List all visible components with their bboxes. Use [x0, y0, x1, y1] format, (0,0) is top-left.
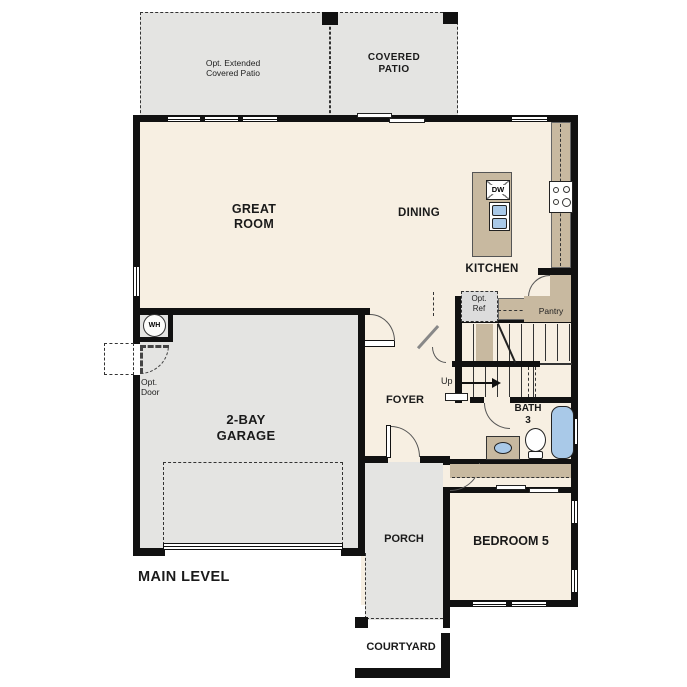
toilet-tank — [528, 451, 543, 459]
closet-slider-panel — [529, 488, 559, 493]
wall — [133, 548, 165, 556]
toilet-icon — [525, 428, 546, 452]
closet-slider-panel — [496, 485, 526, 490]
opt-door-swing-area — [104, 343, 134, 375]
garage-label: 2-BAY GARAGE — [217, 412, 276, 443]
wall — [540, 363, 572, 365]
patio-post — [322, 12, 338, 25]
wall — [443, 490, 450, 628]
bathtub-icon — [551, 406, 574, 459]
courtyard-wall — [355, 668, 450, 678]
sliding-door-panel — [389, 118, 425, 123]
porch-corner-post — [355, 617, 368, 628]
main-level-title: MAIN LEVEL — [138, 569, 230, 586]
window — [571, 569, 578, 593]
wall — [358, 456, 388, 463]
sink-bowl — [492, 205, 507, 216]
porch-dash-edge — [365, 553, 366, 619]
stairs-landing-wall — [476, 324, 493, 361]
wall — [538, 268, 578, 275]
pantry-label: Pantry — [539, 306, 564, 316]
covered-patio-label: COVERED PATIO — [368, 52, 420, 76]
wall — [341, 548, 365, 556]
great-room-label: GREAT ROOM — [232, 202, 276, 232]
wall — [139, 337, 173, 342]
dishwasher-icon: DW — [486, 180, 510, 200]
porch-dash-edge — [366, 618, 443, 619]
dishwasher-label: DW — [490, 185, 506, 194]
closet-rod-dash — [452, 477, 569, 478]
opt-extended-patio-label: Opt. Extended Covered Patio — [206, 58, 260, 78]
up-arrow-head — [492, 378, 501, 388]
opt-door-label: Opt. Door — [141, 377, 159, 397]
porch-label: PORCH — [384, 533, 424, 546]
burner-icon — [553, 187, 559, 193]
wall — [133, 115, 140, 555]
window — [133, 266, 140, 297]
bedroom5-label: BEDROOM 5 — [473, 534, 549, 549]
kitchen-label: KITCHEN — [465, 263, 518, 277]
garage-door-track — [163, 462, 343, 545]
opt-door-opening — [133, 344, 140, 375]
foyer-label: FOYER — [386, 394, 424, 407]
window — [167, 116, 201, 122]
sliding-door-panel — [357, 113, 392, 118]
window — [511, 601, 547, 607]
wall — [470, 397, 484, 403]
closet-shelf — [450, 464, 571, 478]
water-heater-icon: WH — [143, 314, 166, 337]
vanity-sink — [494, 442, 512, 454]
sink-bowl — [492, 218, 507, 229]
wall — [420, 456, 445, 463]
garage-door — [163, 543, 343, 550]
bath3-label: BATH 3 — [514, 403, 541, 427]
stove-icon — [549, 181, 573, 213]
burner-icon — [562, 198, 571, 207]
up-label: Up — [441, 376, 453, 387]
dash-line — [433, 292, 434, 316]
stairs-dash-tread — [535, 367, 536, 397]
up-arrow — [460, 382, 494, 384]
courtyard-label: COURTYARD — [366, 641, 435, 654]
floor-plan: Opt. Extended Covered Patio COVERED PATI… — [0, 0, 687, 687]
window — [511, 116, 548, 122]
door-leaf — [364, 340, 395, 347]
window — [571, 500, 578, 524]
stairs-dash-tread — [528, 367, 529, 397]
window — [242, 116, 278, 122]
burner-icon — [553, 199, 559, 205]
window — [204, 116, 239, 122]
burner-icon — [563, 186, 570, 193]
dining-label: DINING — [398, 207, 440, 221]
kitchen-sink — [489, 202, 510, 231]
opt-ref-label: Opt. Ref — [471, 294, 486, 313]
patio-post — [443, 12, 458, 24]
window — [472, 601, 507, 607]
